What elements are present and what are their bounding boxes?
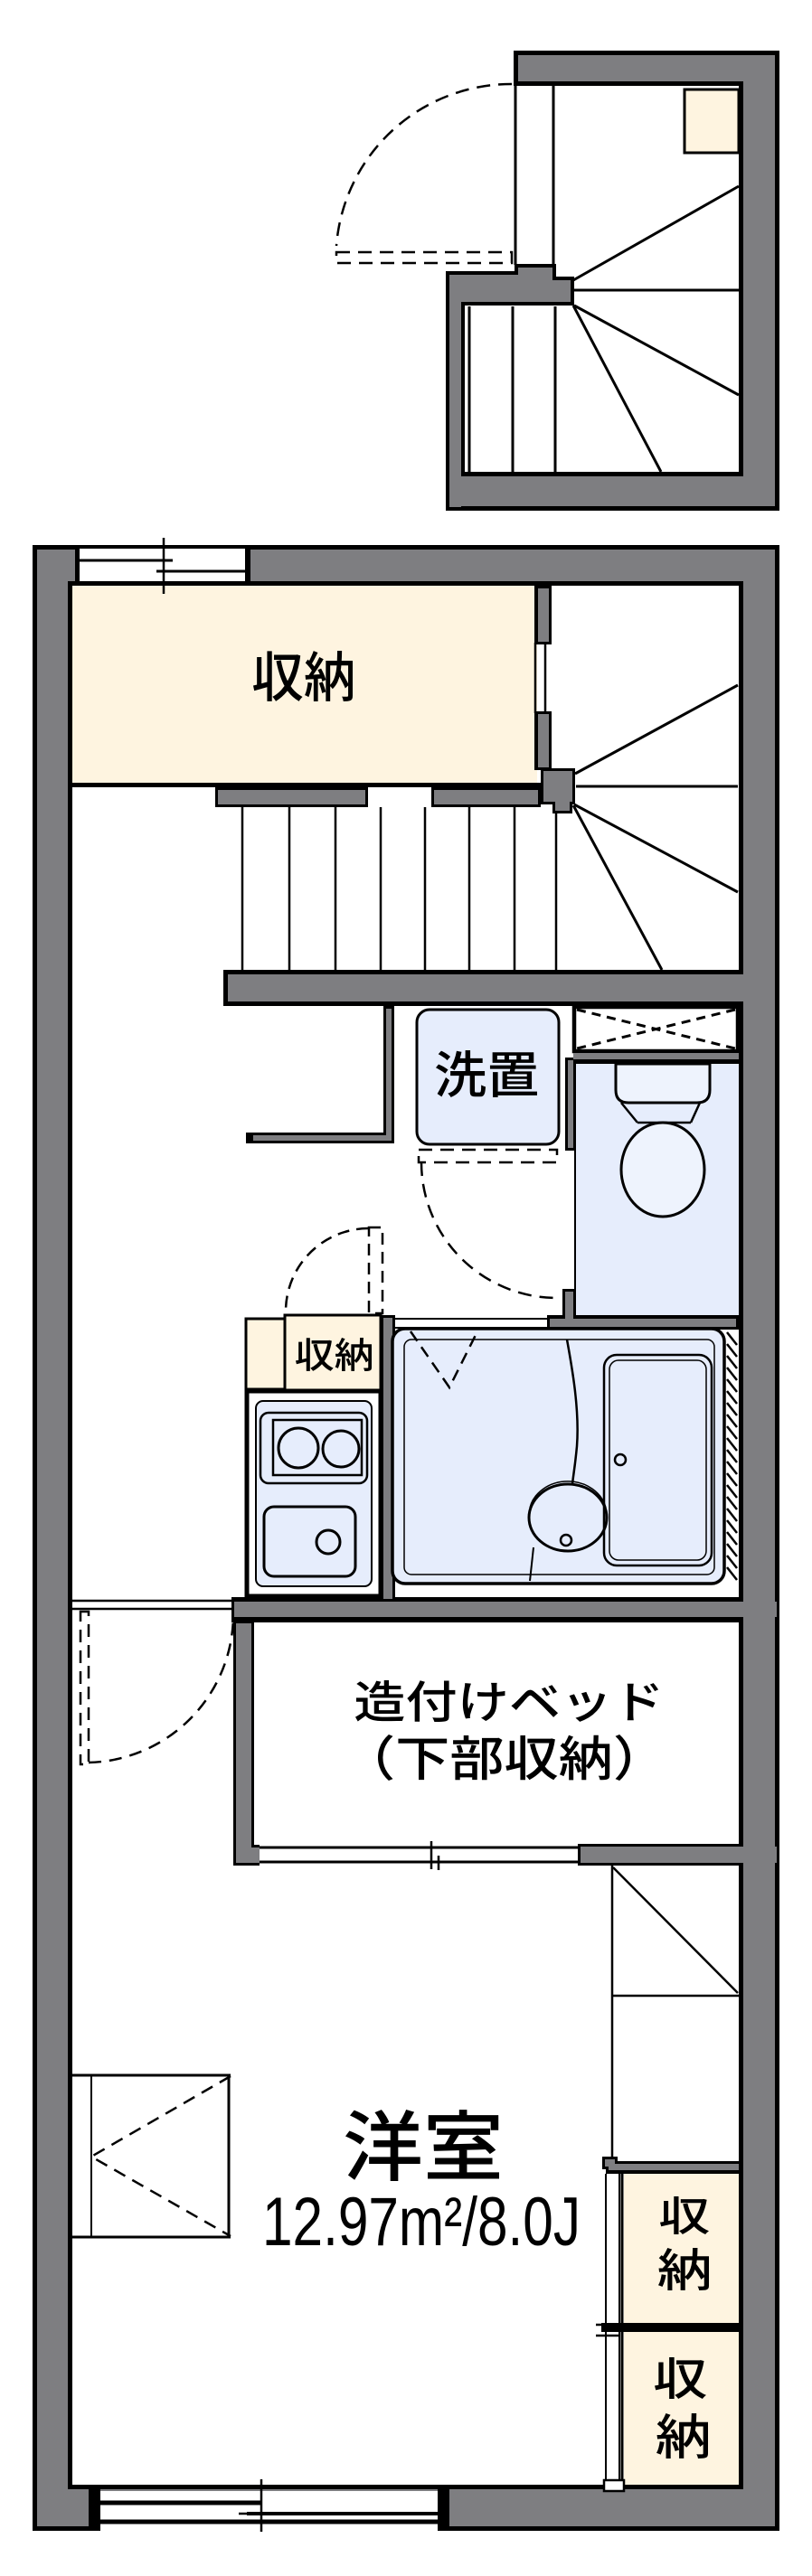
svg-text:12.97m²/8.0J: 12.97m²/8.0J [262, 2184, 581, 2261]
